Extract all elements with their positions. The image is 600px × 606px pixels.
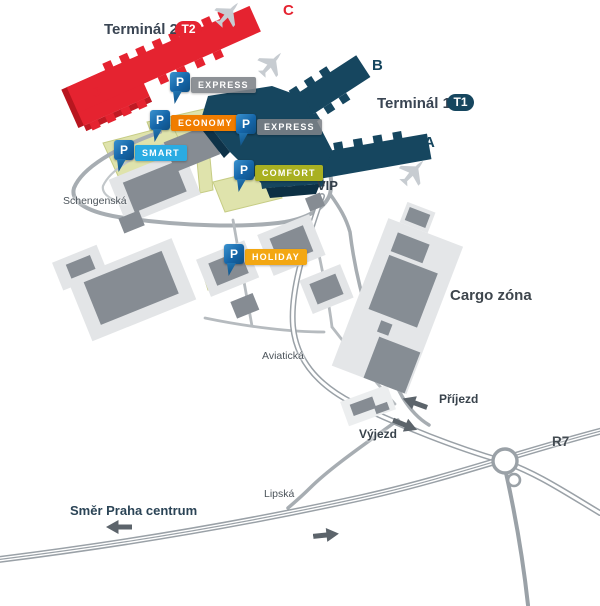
parking-holiday: P HOLIDAY xyxy=(224,244,307,265)
parking-smart: P SMART xyxy=(114,140,187,161)
pier-d-label: D xyxy=(90,84,101,101)
parking-pin-icon: P xyxy=(170,72,190,92)
parking-label: COMFORT xyxy=(255,165,323,181)
exit-label: Výjezd xyxy=(359,427,397,441)
parking-label: ECONOMY xyxy=(171,115,240,131)
parking-economy: P ECONOMY xyxy=(150,110,240,131)
terminal2-badge: T2 xyxy=(175,21,202,38)
street-schengenska: Schengenská xyxy=(63,195,127,207)
parking-label: EXPRESS xyxy=(257,119,322,135)
pier-a-label: A xyxy=(424,134,435,151)
road-r7-label: R7 xyxy=(552,434,569,449)
parking-comfort: P COMFORT xyxy=(234,160,323,181)
parking-label: EXPRESS xyxy=(191,77,256,93)
parking-pin-icon: P xyxy=(150,110,170,130)
parking-pin-icon: P xyxy=(234,160,254,180)
pier-c-label: C xyxy=(283,2,294,19)
parking-pin-icon: P xyxy=(236,114,256,134)
cargo-zone-label: Cargo zóna xyxy=(450,287,532,304)
street-lipska: Lipská xyxy=(264,488,294,500)
praha-direction-label: Směr Praha centrum xyxy=(70,503,197,518)
terminal1-label: Terminál 1 xyxy=(377,95,451,112)
terminal1-badge: T1 xyxy=(447,94,474,111)
parking-pin-icon: P xyxy=(114,140,134,160)
terminal2-label: Terminál 2 xyxy=(104,21,178,38)
pier-b-label: B xyxy=(372,57,383,74)
parking-pin-icon: P xyxy=(224,244,244,264)
parking-label: SMART xyxy=(135,145,187,161)
parking-label: HOLIDAY xyxy=(245,249,307,265)
parking-express-t1: P EXPRESS xyxy=(236,114,322,135)
airport-map: Terminál 2 T2 C D Terminál 1 T1 B A P EX… xyxy=(0,0,600,606)
arrival-label: Příjezd xyxy=(439,392,478,406)
parking-express-t2: P EXPRESS xyxy=(170,72,256,93)
street-aviaticka: Aviatická xyxy=(262,350,304,362)
